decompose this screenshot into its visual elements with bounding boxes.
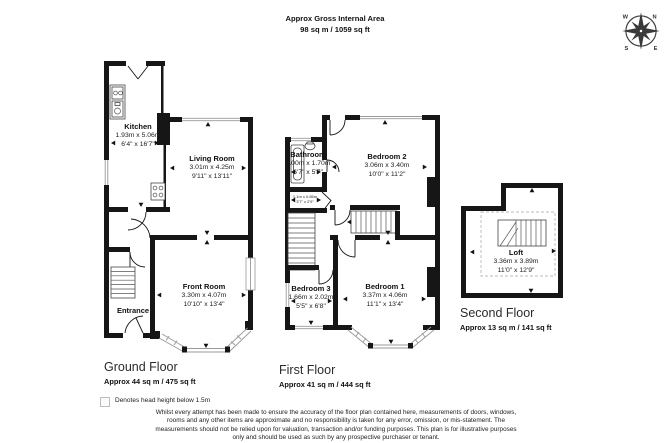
room-label-bedroom-3: Bedroom 3 1.66m x 2.02m 5'5" x 6'8" (289, 284, 334, 311)
compass-rose-icon: N E S W (616, 6, 666, 56)
disclaimer-text: Whilst every attempt has been made to en… (155, 409, 517, 442)
legend-text: Denotes head height below 1.5m (115, 397, 210, 404)
inner-door-arc (130, 252, 145, 267)
room-label-wc: 1.1m x 0.85m 3'7" x 2'9" (293, 195, 317, 204)
head-height-legend: Denotes head height below 1.5m (100, 397, 210, 407)
bedroom3-door-arc (319, 270, 333, 284)
room-label-bedroom-2: Bedroom 2 3.06m x 3.40m 10'0" x 11'2" (365, 152, 410, 179)
landing-door-arc (335, 210, 350, 225)
stairs-icon (288, 213, 315, 270)
bay-window (348, 327, 434, 349)
compass-s-label: S (625, 46, 629, 52)
compass-w-label: W (623, 15, 629, 21)
compass-e-label: E (654, 46, 658, 52)
ground-floor-plan: Kitchen 1.93m x 5.06m 6'4" x 16'7" Livin… (90, 55, 270, 365)
header-area-total: 98 sq m / 1059 sq ft (0, 24, 670, 35)
bay-window (150, 321, 253, 353)
head-height-swatch-icon (100, 397, 110, 407)
room-label-entrance: Entrance (117, 306, 149, 316)
room-label-living-room: Living Room 3.01m x 4.25m 9'11" x 13'11" (189, 154, 234, 181)
bedroom2-door-arc (330, 120, 345, 135)
compass-n-label: N (652, 15, 656, 21)
sink-icon (110, 85, 125, 119)
gross-internal-area-header: Approx Gross Internal Area 98 sq m / 105… (0, 13, 670, 35)
stairs-icon (498, 220, 546, 246)
header-title: Approx Gross Internal Area (0, 13, 670, 24)
bedroom1-door-arc (338, 240, 355, 257)
ground-floor-caption: Ground Floor Approx 44 sq m / 475 sq ft (104, 360, 196, 386)
hall-door-arc (131, 219, 150, 238)
hall-door-arc (128, 212, 146, 230)
stairs-icon (351, 211, 397, 233)
first-floor-caption: First Floor Approx 41 sq m / 444 sq ft (279, 363, 371, 389)
floorplan-page: Approx Gross Internal Area 98 sq m / 105… (0, 0, 670, 443)
stairs-icon (111, 267, 135, 298)
first-floor-plan: Bathroom 2.00m x 1.70m 6'7" x 5'7" Bedro… (275, 115, 445, 365)
room-label-front-room: Front Room 3.30m x 4.07m 10'10" x 13'4" (182, 282, 227, 309)
room-label-bedroom-1: Bedroom 1 3.37m x 4.06m 11'1" x 13'4" (363, 282, 408, 309)
basin-icon (305, 142, 315, 150)
cooker-icon (151, 183, 165, 200)
room-label-loft: Loft 3.36m x 3.89m 11'0" x 12'9" (494, 248, 539, 275)
kitchen-door (128, 66, 148, 79)
front-door-arc (125, 316, 143, 333)
second-floor-caption: Second Floor Approx 13 sq m / 141 sq ft (460, 306, 552, 332)
room-label-kitchen: Kitchen 1.93m x 5.06m 6'4" x 16'7" (116, 122, 161, 149)
ground-floor-drawing (90, 55, 270, 365)
room-label-bathroom: Bathroom 2.00m x 1.70m 6'7" x 5'7" (286, 150, 331, 177)
